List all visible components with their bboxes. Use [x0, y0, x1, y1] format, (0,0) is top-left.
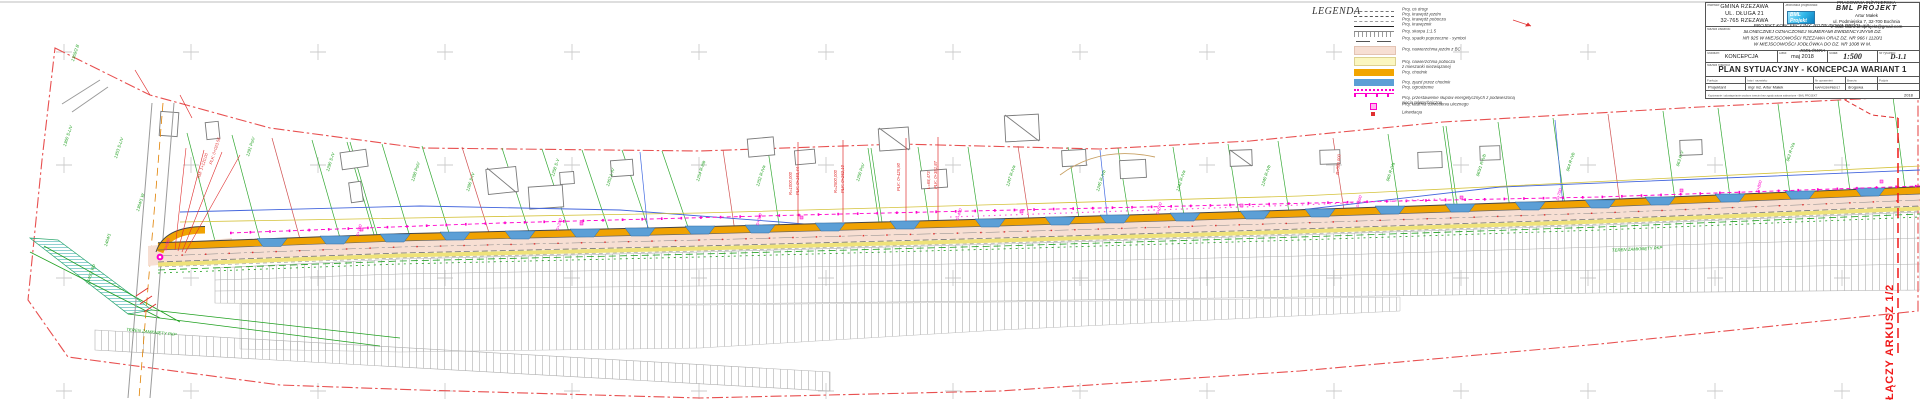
- chainage-start-marker: [157, 254, 164, 261]
- designer-license-cell: MAP/0299/PBD/17: [1814, 84, 1846, 92]
- legend-crossfall-sample: [1354, 38, 1394, 42]
- drawing-name-cell: Nazwa rysunku: PLAN SYTUACYJNY - KONCEPC…: [1706, 63, 1919, 77]
- legend-item-label: Proj. skarpa 1:1.5: [1402, 30, 1545, 35]
- legend-item-label: Proj. latarnia oświetlenia ulicznego: [1402, 103, 1545, 108]
- legend-item-label: Proj. chodnik: [1402, 71, 1545, 76]
- stage-label: Stadium:: [1707, 52, 1720, 55]
- designer-signature-cell: [1878, 84, 1919, 92]
- site-plan-drawing: [0, 0, 1920, 414]
- drawing-number-cell: Nr rysunku: D-1.1: [1878, 51, 1919, 63]
- legend-lamp-sample: [1370, 103, 1377, 110]
- legend-item-label: Proj. spadki poprzeczne - symbol: [1402, 37, 1545, 42]
- fine-print: Kopiowanie i udostępnianie osobom trzeci…: [1708, 95, 1817, 98]
- stage-value: KONCEPCJA: [1725, 54, 1759, 60]
- scale-label: Skala:: [1829, 52, 1838, 55]
- legend-removal-sample: [1371, 112, 1375, 116]
- date-cell: Data: maj 2018: [1778, 51, 1828, 63]
- designer-role-cell: Projektant: [1706, 84, 1746, 92]
- investor-label: Inwestor:: [1707, 4, 1720, 7]
- designer-firm: BML PROJEKT: [1831, 5, 1903, 13]
- drawing-name-label: Nazwa rysunku:: [1707, 64, 1730, 67]
- legend-power-sample: [1354, 93, 1394, 97]
- task-cell: Nazwa zadania: PROJEKT KONCEPCYJNY: ROZB…: [1706, 27, 1919, 51]
- date-label: Data:: [1779, 52, 1787, 55]
- designer-name-cell: mgr inż. Artur Małek: [1746, 84, 1814, 92]
- drawing-number-label: Nr rysunku:: [1879, 52, 1896, 55]
- legend-item-label: Proj. ogrodzenie: [1402, 86, 1545, 91]
- designer-label: Jednostka projektowa:: [1785, 4, 1818, 7]
- legend-sidewalk-swatch: [1354, 69, 1394, 76]
- scale-cell: Skala: 1:500: [1828, 51, 1878, 63]
- legend-axis-sample: [1354, 11, 1394, 12]
- legend-roadway-swatch: [1354, 46, 1396, 55]
- title-block: Inwestor: GMINA RZEZAWA UL. DŁUGA 21 32-…: [1705, 2, 1920, 99]
- fine-print-cell: Kopiowanie i udostępnianie osobom trzeci…: [1706, 91, 1919, 98]
- legend-slope-sample: [1354, 31, 1394, 37]
- legend-item-label: Proj. nawierzchnia jezdni z BC: [1402, 48, 1545, 53]
- designer-branch-cell: drogowa: [1846, 84, 1878, 92]
- date-value: maj 2018: [1791, 54, 1814, 60]
- legend: LEGENDA Proj. oś drogi Proj. krawędź jez…: [1308, 4, 1538, 122]
- legend-edge-sample: [1354, 16, 1394, 17]
- investor-name: GMINA RZEZAWA: [1720, 4, 1768, 11]
- drawing-name-value: PLAN SYTUACYJNY - KONCEPCJA WARIANT 1: [1718, 65, 1906, 74]
- scale-value: 1:500: [1843, 52, 1862, 61]
- investor-address: UL. DŁUGA 21: [1720, 11, 1768, 18]
- sheet-join-label: ŁĄCZY ARKUSZ 1/2: [1884, 284, 1896, 400]
- legend-shoulder-swatch: [1354, 57, 1396, 66]
- year-note: 2018: [1904, 94, 1913, 98]
- task-label: Nazwa zadania:: [1707, 28, 1730, 31]
- stage-cell: Stadium: KONCEPCJA: [1706, 51, 1778, 63]
- legend-item-label: Proj. krawężnik: [1402, 23, 1545, 28]
- task-text: PROJEKT KONCEPCYJNY: ROZBUDOWA DROGI - U…: [1742, 23, 1883, 54]
- legend-item-label: Proj. nawierzchnia pobocza z mieszanki n…: [1402, 60, 1545, 70]
- legend-fence-sample: [1354, 89, 1394, 91]
- legend-item-label: Likwidacja: [1402, 111, 1545, 116]
- legend-driveway-swatch: [1354, 79, 1394, 86]
- legend-curb-sample: [1354, 26, 1394, 27]
- plan-sheet: 1369/2 B 1360 S-LIV 1353 S-LIV 1364/1 W …: [0, 0, 1920, 414]
- legend-shoulder-edge-sample: [1354, 21, 1394, 22]
